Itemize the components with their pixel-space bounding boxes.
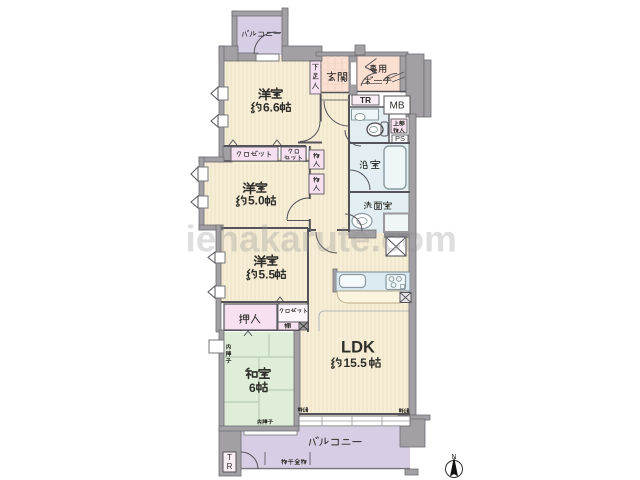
svg-text:6: 6 (249, 381, 256, 395)
svg-text:R: R (227, 462, 233, 471)
svg-text:LDK: LDK (341, 339, 375, 357)
svg-text:5.0: 5.0 (248, 194, 265, 208)
svg-text:PS: PS (395, 134, 405, 143)
svg-text:iehakarute.com: iehakarute.com (186, 219, 457, 260)
svg-text:T: T (227, 453, 232, 462)
svg-text:N: N (451, 454, 456, 461)
svg-text:5.5: 5.5 (259, 268, 276, 282)
svg-text:TR: TR (360, 95, 371, 105)
svg-text:MB: MB (390, 101, 405, 112)
svg-text:15.5: 15.5 (344, 356, 368, 370)
svg-text:6.6: 6.6 (263, 101, 280, 115)
